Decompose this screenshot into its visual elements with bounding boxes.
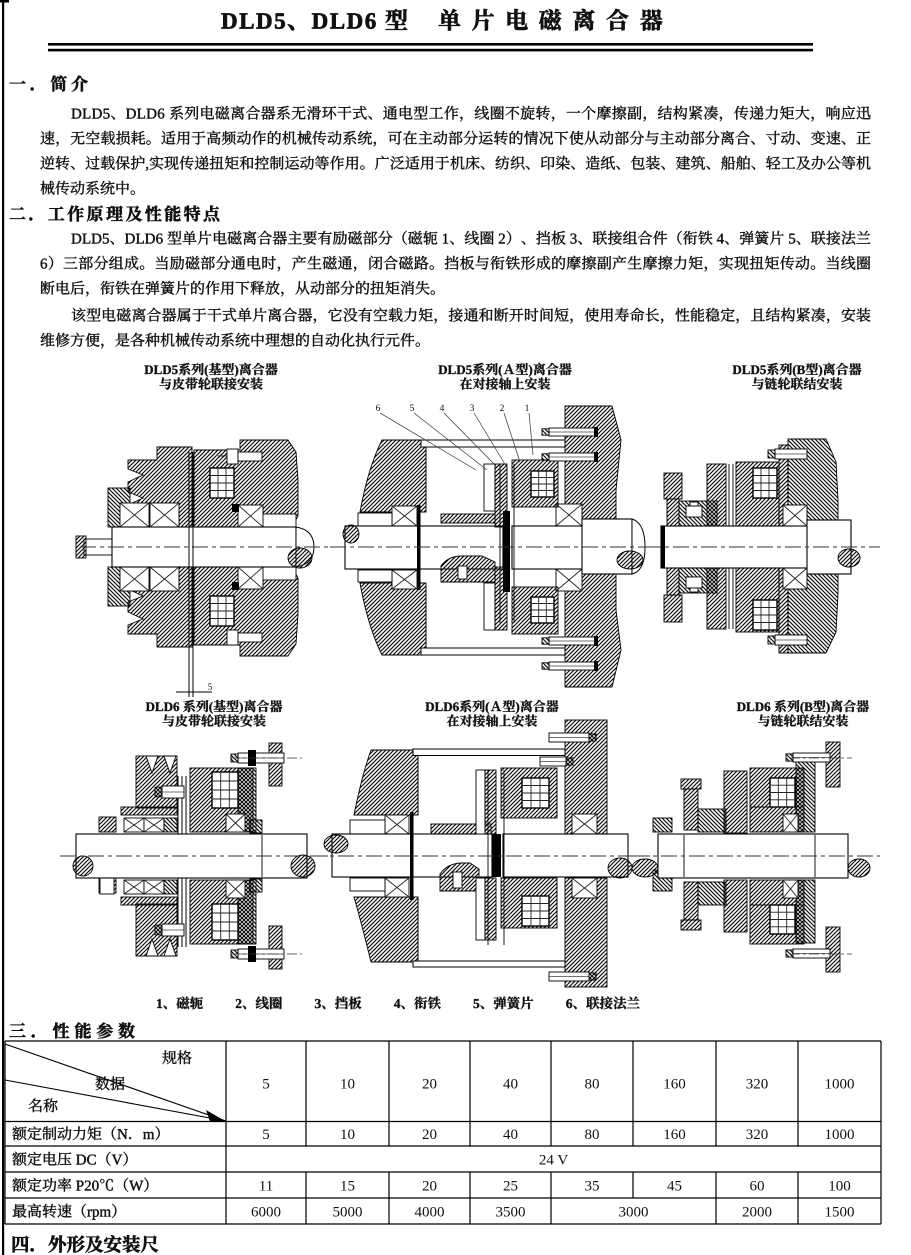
svg-text:100: 100: [828, 1179, 851, 1195]
svg-text:1500: 1500: [825, 1205, 855, 1221]
svg-text:5: 5: [208, 682, 213, 692]
svg-text:5: 5: [262, 1127, 270, 1143]
svg-text:20: 20: [422, 1127, 437, 1143]
svg-text:1000: 1000: [825, 1127, 855, 1143]
svg-text:1: 1: [525, 404, 530, 414]
svg-text:20: 20: [422, 1179, 437, 1195]
svg-text:4000: 4000: [415, 1205, 445, 1221]
svg-text:160: 160: [663, 1127, 686, 1143]
svg-text:60: 60: [750, 1179, 765, 1195]
svg-text:40: 40: [503, 1127, 518, 1143]
svg-text:2000: 2000: [742, 1205, 772, 1221]
svg-text:35: 35: [585, 1179, 600, 1195]
svg-text:3: 3: [470, 404, 475, 414]
svg-text:20: 20: [422, 1077, 437, 1093]
svg-text:25: 25: [503, 1179, 518, 1195]
svg-text:2: 2: [500, 404, 505, 414]
svg-text:1000: 1000: [825, 1077, 855, 1093]
svg-text:320: 320: [746, 1077, 769, 1093]
svg-text:160: 160: [663, 1077, 686, 1093]
svg-text:320: 320: [746, 1127, 769, 1143]
svg-text:6: 6: [376, 404, 381, 414]
svg-text:24 V: 24 V: [539, 1153, 568, 1169]
svg-text:5000: 5000: [333, 1205, 363, 1221]
svg-text:5: 5: [262, 1077, 270, 1093]
svg-text:10: 10: [340, 1127, 355, 1143]
svg-text:80: 80: [585, 1127, 600, 1143]
svg-text:15: 15: [340, 1179, 355, 1195]
svg-text:80: 80: [585, 1077, 600, 1093]
svg-text:5: 5: [410, 404, 415, 414]
svg-text:4: 4: [440, 404, 445, 414]
svg-text:10: 10: [340, 1077, 355, 1093]
svg-text:3000: 3000: [619, 1205, 649, 1221]
svg-text:45: 45: [667, 1179, 682, 1195]
svg-text:6000: 6000: [251, 1205, 281, 1221]
svg-text:11: 11: [259, 1179, 273, 1195]
svg-text:3500: 3500: [496, 1205, 526, 1221]
svg-text:40: 40: [503, 1077, 518, 1093]
